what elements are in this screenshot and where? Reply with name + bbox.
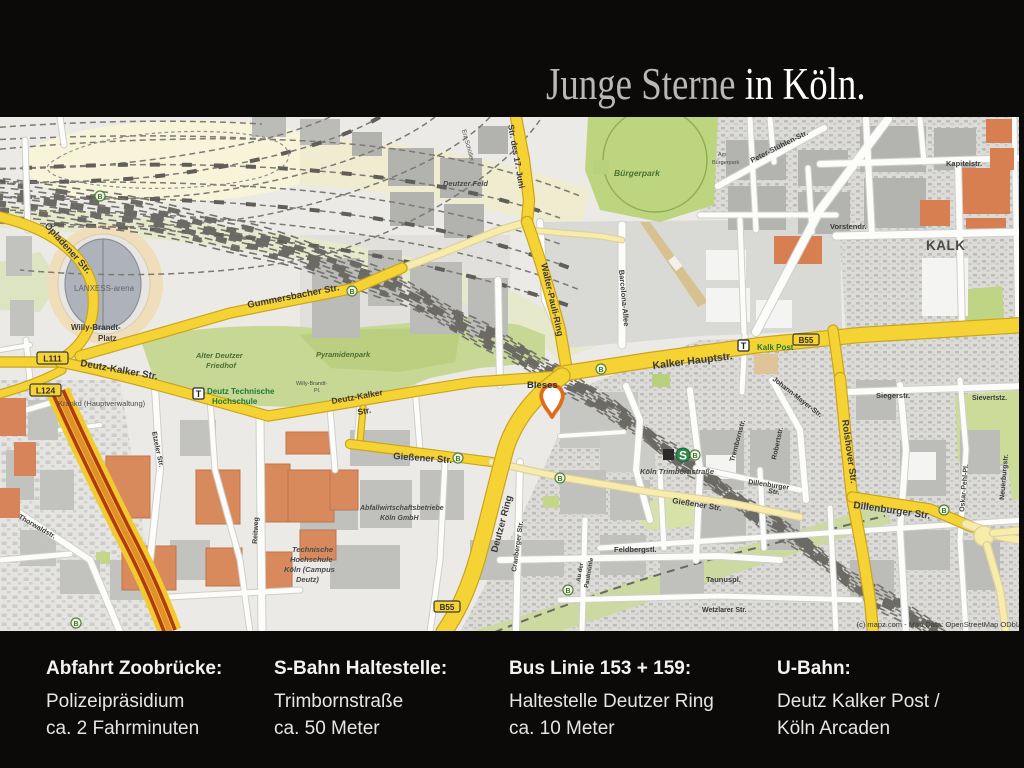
svg-text:Krankd (Hauptverwaltung): Krankd (Hauptverwaltung) bbox=[58, 399, 146, 408]
svg-text:B: B bbox=[692, 453, 697, 460]
svg-text:Köln (Campus: Köln (Campus bbox=[284, 565, 335, 574]
svg-text:Willy-Brandt-: Willy-Brandt- bbox=[71, 323, 121, 332]
svg-text:L111: L111 bbox=[43, 354, 62, 364]
svg-text:ca. 10 Meter: ca. 10 Meter bbox=[509, 718, 615, 739]
svg-text:Siegerstr.: Siegerstr. bbox=[876, 391, 910, 400]
svg-text:Hochschule: Hochschule bbox=[290, 555, 333, 564]
svg-text:Am: Am bbox=[718, 152, 727, 158]
svg-text:B: B bbox=[941, 508, 946, 515]
svg-text:B: B bbox=[598, 367, 603, 374]
svg-text:S-Bahn Haltestelle:: S-Bahn Haltestelle: bbox=[274, 658, 447, 679]
svg-text:B55: B55 bbox=[799, 336, 814, 345]
svg-text:Kalk Post: Kalk Post bbox=[757, 343, 794, 352]
svg-text:Kapitelstr.: Kapitelstr. bbox=[946, 159, 982, 168]
svg-text:Junge Sterne in Köln.: Junge Sterne in Köln. bbox=[546, 59, 866, 109]
svg-text:Haltestelle Deutzer Ring: Haltestelle Deutzer Ring bbox=[509, 691, 714, 712]
svg-text:Taunuspl.: Taunuspl. bbox=[706, 575, 741, 584]
svg-text:Alter Deutzer: Alter Deutzer bbox=[195, 351, 244, 360]
svg-text:Platz: Platz bbox=[98, 334, 117, 343]
svg-text:(c) mapz.com - Map Data: OpenS: (c) mapz.com - Map Data: OpenStreetMap O… bbox=[857, 620, 1020, 629]
svg-text:B: B bbox=[73, 621, 78, 628]
svg-text:S: S bbox=[679, 449, 687, 463]
svg-text:LANXESS-arena: LANXESS-arena bbox=[74, 284, 135, 293]
svg-text:Hochschule: Hochschule bbox=[212, 397, 258, 406]
svg-text:T: T bbox=[741, 341, 747, 351]
svg-text:ca. 50 Meter: ca. 50 Meter bbox=[274, 718, 380, 739]
svg-text:B55: B55 bbox=[440, 603, 455, 612]
svg-text:Deutzer Feld: Deutzer Feld bbox=[443, 179, 488, 188]
svg-text:ca. 2 Fahrminuten: ca. 2 Fahrminuten bbox=[46, 718, 199, 739]
svg-text:Köln GmbH: Köln GmbH bbox=[380, 515, 419, 522]
svg-text:Bürgerpark: Bürgerpark bbox=[712, 160, 739, 166]
svg-text:Deutz Kalker Post /: Deutz Kalker Post / bbox=[777, 691, 940, 712]
svg-text:Pl.: Pl. bbox=[314, 388, 321, 394]
svg-text:B: B bbox=[455, 456, 460, 463]
svg-text:Bleses: Bleses bbox=[527, 380, 558, 391]
svg-text:Willy-Brandt-: Willy-Brandt- bbox=[296, 381, 328, 387]
svg-text:T: T bbox=[196, 389, 202, 399]
svg-text:U-Bahn:: U-Bahn: bbox=[777, 658, 851, 679]
svg-text:B: B bbox=[557, 476, 562, 483]
svg-text:Polizeipräsidium: Polizeipräsidium bbox=[46, 691, 184, 712]
svg-text:B: B bbox=[565, 588, 570, 595]
svg-text:Vorstendr.: Vorstendr. bbox=[830, 222, 867, 231]
svg-text:Technische: Technische bbox=[292, 545, 333, 554]
svg-text:Wetzlarer Str.: Wetzlarer Str. bbox=[702, 607, 747, 614]
svg-text:Deutz): Deutz) bbox=[296, 575, 319, 584]
svg-text:Deutz Technische: Deutz Technische bbox=[207, 387, 275, 396]
svg-text:KALK: KALK bbox=[926, 238, 966, 253]
svg-text:B: B bbox=[97, 194, 102, 201]
svg-text:Bus Linie 153 + 159:: Bus Linie 153 + 159: bbox=[509, 658, 691, 679]
svg-text:Abfahrt Zoobrücke:: Abfahrt Zoobrücke: bbox=[46, 658, 222, 679]
svg-text:Friedhof: Friedhof bbox=[206, 361, 237, 370]
svg-text:L124: L124 bbox=[36, 386, 56, 396]
svg-text:Köln Arcaden: Köln Arcaden bbox=[777, 718, 890, 739]
svg-text:Abfallwirtschaftsbetriebe: Abfallwirtschaftsbetriebe bbox=[359, 505, 444, 512]
svg-text:Bürgerpark: Bürgerpark bbox=[614, 168, 661, 178]
svg-text:Köln Trimbornstraße: Köln Trimbornstraße bbox=[640, 467, 714, 476]
svg-text:Sievertstz.: Sievertstz. bbox=[972, 395, 1007, 402]
svg-text:B: B bbox=[349, 289, 354, 296]
svg-text:Trimbornstraße: Trimbornstraße bbox=[274, 691, 403, 712]
svg-text:Feldbergstl.: Feldbergstl. bbox=[614, 545, 657, 554]
svg-text:Pyramidenpark: Pyramidenpark bbox=[316, 350, 371, 359]
svg-text:Reitweg: Reitweg bbox=[252, 517, 260, 544]
